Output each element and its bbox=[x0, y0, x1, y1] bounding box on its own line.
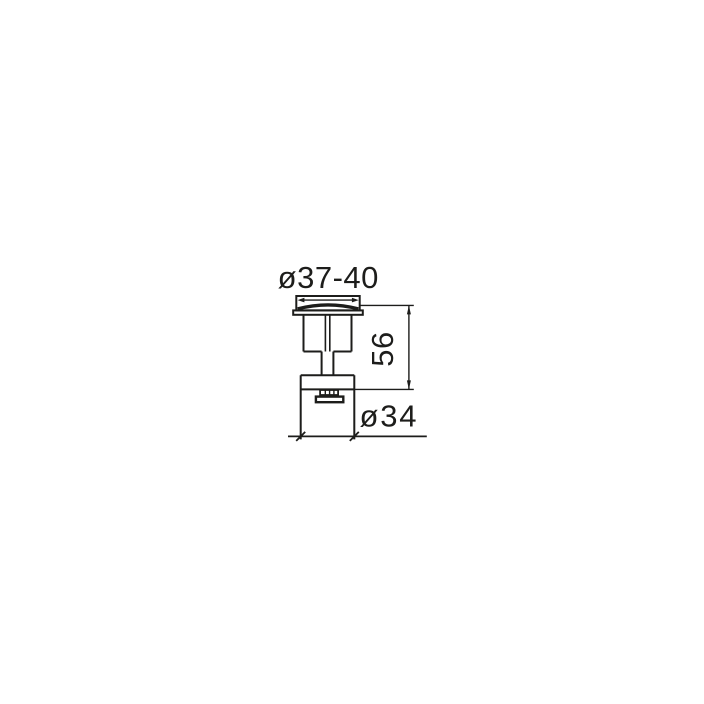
cap-diameter-label: ø37-40 bbox=[278, 260, 379, 295]
seal-washer-detail bbox=[316, 397, 343, 403]
plug-cap-flange bbox=[293, 310, 363, 314]
cap-dimension-arrow-left bbox=[298, 298, 305, 303]
plug-body-outline bbox=[304, 315, 352, 352]
base-diameter-label: ø34 bbox=[360, 399, 419, 434]
technical-drawing-canvas: ø37-40 56 ø34 bbox=[0, 0, 704, 704]
dimension-labels: ø37-40 56 ø34 bbox=[278, 260, 419, 434]
cap-dimension-arrow-right bbox=[352, 298, 359, 303]
plug-cap-dome-curve bbox=[298, 305, 359, 309]
height-dimension-arrow-top bbox=[407, 305, 411, 314]
valve-base-outline bbox=[301, 375, 355, 439]
drawing-page: ø37-40 56 ø34 bbox=[0, 0, 704, 704]
plug-body-center-lines bbox=[325, 315, 329, 352]
height-dimension-arrow-bottom bbox=[407, 380, 411, 389]
height-label: 56 bbox=[365, 331, 400, 366]
plug-stem-outline bbox=[322, 352, 334, 376]
